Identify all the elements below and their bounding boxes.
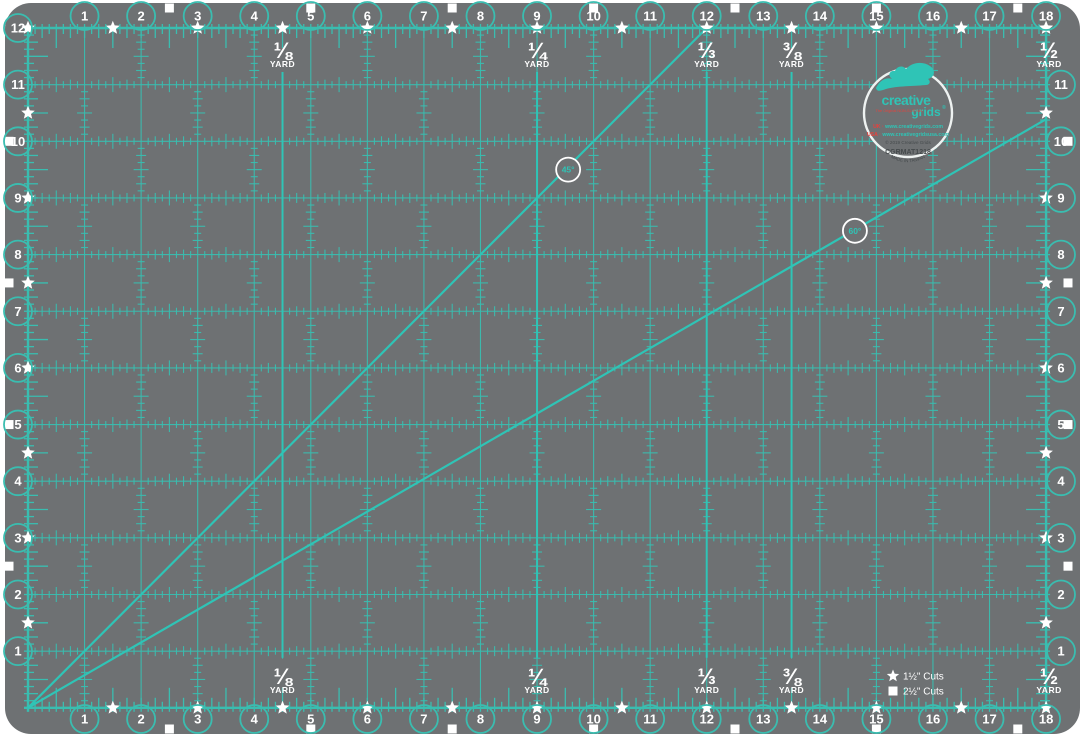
grid-number: 14 <box>813 9 828 24</box>
grid-number: 2 <box>138 712 145 727</box>
grid-number: 1 <box>14 644 21 659</box>
square-marker <box>1064 278 1073 287</box>
angle-badge-label: 60° <box>848 226 861 236</box>
grid-number: 10 <box>586 9 600 24</box>
yard-unit: YARD <box>779 685 804 695</box>
grid-number: 15 <box>869 9 883 24</box>
grid-number: 18 <box>1039 712 1053 727</box>
grid-number: 2 <box>14 587 21 602</box>
grid-number: 17 <box>982 712 996 727</box>
grid-number: 7 <box>420 712 427 727</box>
yard-unit: YARD <box>1036 685 1061 695</box>
logo-registered: ® <box>942 104 946 111</box>
grid-number: 6 <box>364 712 371 727</box>
grid-number: 5 <box>14 417 21 432</box>
square-marker <box>165 725 174 734</box>
grid-number: 4 <box>251 712 259 727</box>
grid-number: 10 <box>11 134 25 149</box>
grid-number: 17 <box>982 9 996 24</box>
legend-label: 2½" Cuts <box>903 687 944 698</box>
square-marker <box>731 4 740 13</box>
grid-number: 16 <box>926 712 940 727</box>
grid-number: 11 <box>1054 77 1068 92</box>
angle-badge: 60° <box>843 219 867 243</box>
grid-number: 14 <box>813 712 828 727</box>
yard-unit: YARD <box>779 59 804 69</box>
yard-unit: YARD <box>694 59 719 69</box>
yard-unit: YARD <box>270 59 295 69</box>
square-marker <box>5 562 14 571</box>
grid-number: 7 <box>14 304 21 319</box>
grid-number: 1 <box>1057 644 1064 659</box>
logo-tagline: The Original NON-SLIP tool <box>876 109 923 113</box>
grid-number: 7 <box>420 9 427 24</box>
square-marker <box>1064 562 1073 571</box>
grid-number: 4 <box>1057 474 1065 489</box>
yard-unit: YARD <box>694 685 719 695</box>
grid-number: 1 <box>81 712 88 727</box>
grid-number: 11 <box>11 77 25 92</box>
logo-copyright: © 2019 Creative Grids <box>885 139 931 145</box>
grid-number: 8 <box>477 712 484 727</box>
grid-number: 13 <box>756 712 770 727</box>
legend-label: 1½" Cuts <box>903 672 944 683</box>
logo-sku: CGRMAT1218 <box>885 149 931 156</box>
yard-unit: YARD <box>270 685 295 695</box>
yard-unit: YARD <box>524 59 549 69</box>
logo-usa-line: USA · www.creativegridsusa.com <box>867 132 949 138</box>
grid-number: 3 <box>194 9 201 24</box>
grid-number: 4 <box>14 474 22 489</box>
grid-number: 3 <box>14 530 21 545</box>
grid-number: 6 <box>364 9 371 24</box>
grid-number: 11 <box>643 9 657 24</box>
grid-number: 5 <box>1057 417 1064 432</box>
square-marker <box>1013 4 1022 13</box>
square-marker <box>448 4 457 13</box>
grid-number: 2 <box>138 9 145 24</box>
grid-number: 2 <box>1057 587 1064 602</box>
grid-number: 9 <box>1057 190 1064 205</box>
square-marker <box>448 725 457 734</box>
grid-number: 12 <box>699 712 713 727</box>
angle-badge-label: 45° <box>562 165 575 175</box>
grid-number: 8 <box>14 247 21 262</box>
grid-number: 10 <box>1054 134 1068 149</box>
grid-number: 9 <box>533 9 540 24</box>
grid-number: 11 <box>643 712 657 727</box>
legend-square-icon <box>889 687 898 696</box>
grid-number: 16 <box>926 9 940 24</box>
grid-number: 5 <box>307 9 314 24</box>
cutting-mat-product-image: 45°60°1234567891011121314151617181234567… <box>0 0 1080 739</box>
grid-number: 3 <box>194 712 201 727</box>
yard-unit: YARD <box>524 685 549 695</box>
grid-number: 18 <box>1039 9 1053 24</box>
grid-number: 7 <box>1057 304 1064 319</box>
grid-number: 12 <box>11 21 25 36</box>
grid-number: 15 <box>869 712 883 727</box>
square-marker <box>5 278 14 287</box>
grid-number: 6 <box>1057 360 1064 375</box>
grid-number: 8 <box>477 9 484 24</box>
square-marker <box>165 4 174 13</box>
grid-number: 12 <box>699 9 713 24</box>
grid-number: 5 <box>307 712 314 727</box>
grid-number: 9 <box>533 712 540 727</box>
square-marker <box>5 420 14 429</box>
yard-unit: YARD <box>1036 59 1061 69</box>
angle-badge: 45° <box>556 158 580 182</box>
grid-number: 10 <box>586 712 600 727</box>
grid-number: 8 <box>1057 247 1064 262</box>
grid-number: 6 <box>14 360 21 375</box>
grid-number: 9 <box>14 190 21 205</box>
square-marker <box>1013 725 1022 734</box>
grid-number: 1 <box>81 9 88 24</box>
square-marker <box>731 725 740 734</box>
grid-number: 4 <box>251 9 259 24</box>
grid-number: 3 <box>1057 530 1064 545</box>
cutting-mat: 45°60°1234567891011121314151617181234567… <box>0 0 1080 739</box>
grid-number: 13 <box>756 9 770 24</box>
logo-uk-line: UK · www.creativegrids.com <box>873 124 943 130</box>
square-marker <box>1064 420 1073 429</box>
